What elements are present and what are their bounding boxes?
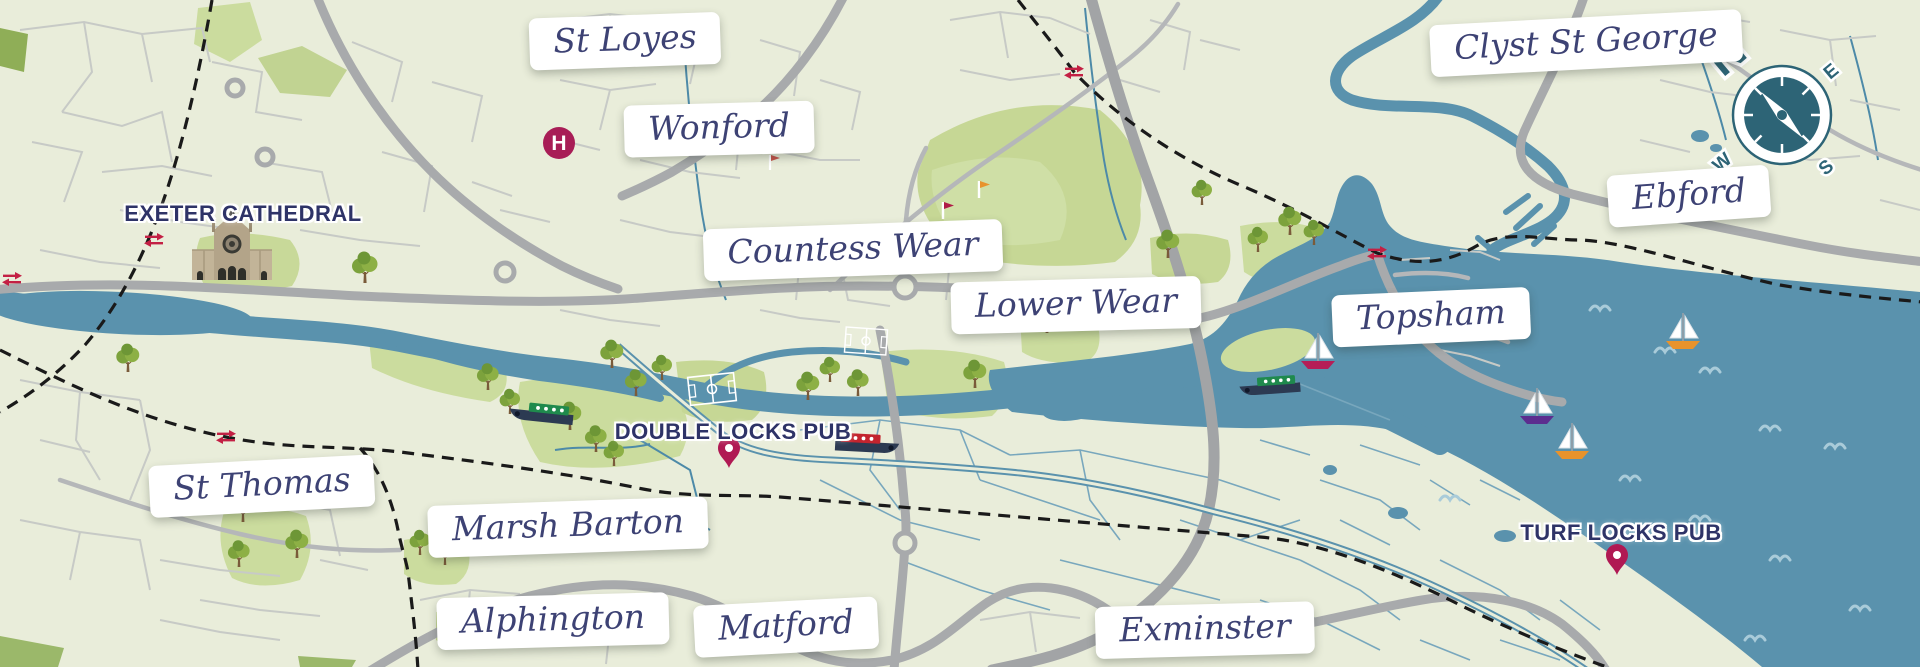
map-label-alphington: Alphington [436,592,669,650]
map-label-matford: Matford [693,596,879,657]
map-label-st-loyes: St Loyes [529,12,722,70]
illustrated-exe-estuary-map: H N E W S St Loyes Wonford Clyst St Geor… [0,0,1920,667]
map-label-turf-locks-pub: TURF LOCKS PUB [1520,520,1721,546]
map-label-lower-wear: Lower Wear [950,276,1201,334]
map-label-topsham: Topsham [1331,287,1531,347]
map-label-countess-wear: Countess Wear [703,219,1004,281]
map-label-exeter-cathedral: EXETER CATHEDRAL [124,201,361,227]
hospital-icon: H [543,127,575,159]
map-label-exminster: Exminster [1095,601,1316,658]
hospital-letter: H [551,132,566,155]
map-label-marsh-barton: Marsh Barton [427,496,709,557]
map-label-wonford: Wonford [623,101,814,158]
map-label-double-locks-pub: DOUBLE LOCKS PUB [615,419,852,445]
